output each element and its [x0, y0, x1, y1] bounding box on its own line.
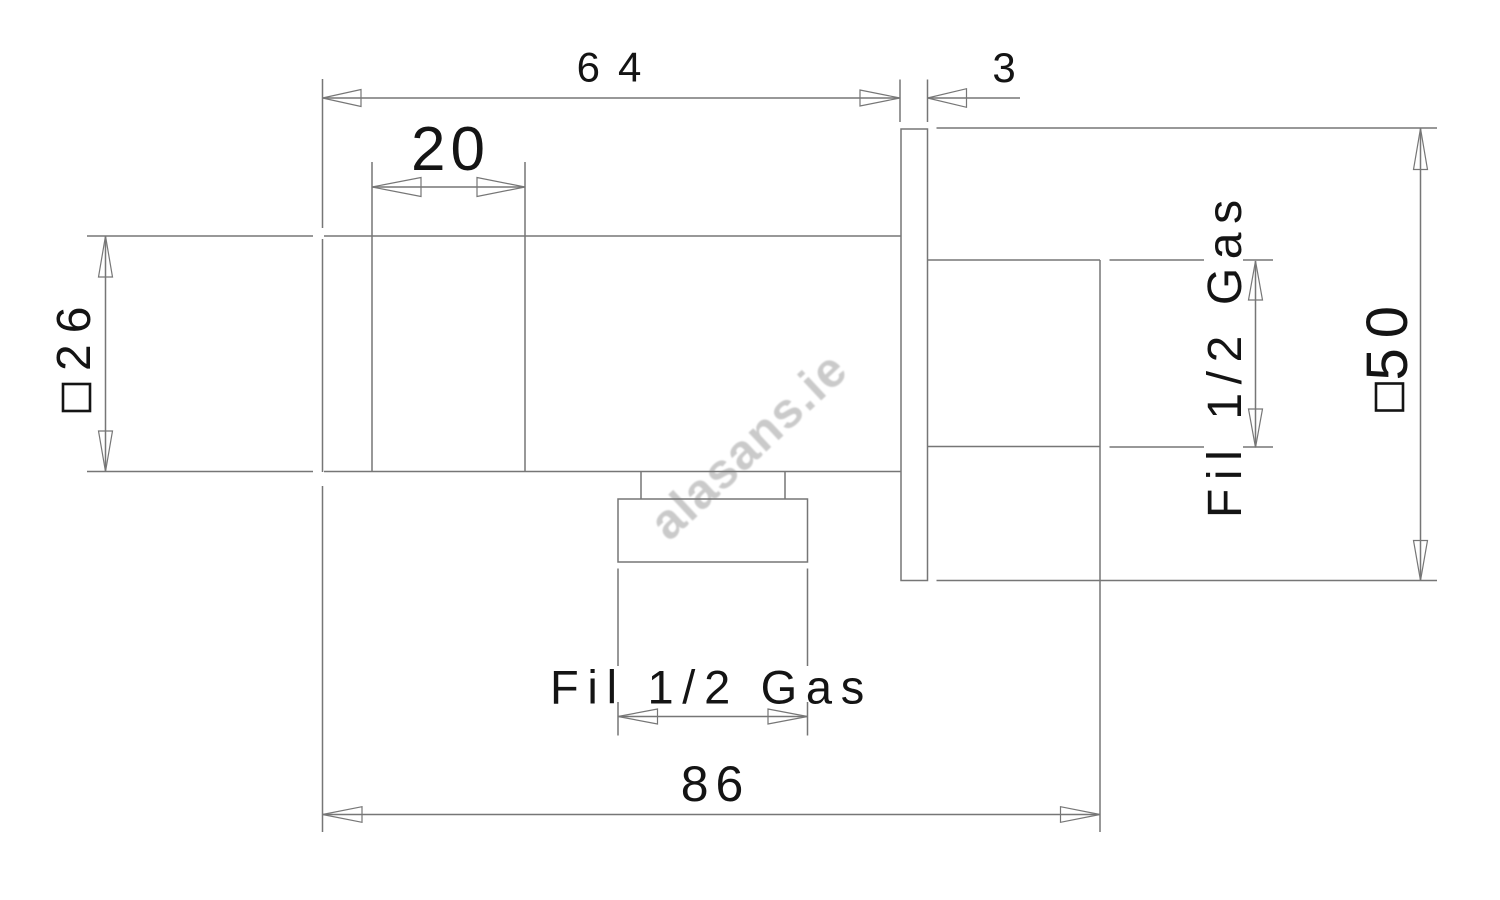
svg-text:26: 26 [48, 296, 101, 371]
svg-text:50: 50 [1355, 296, 1420, 381]
svg-text:86: 86 [681, 756, 751, 812]
svg-text:20: 20 [411, 115, 490, 184]
svg-text:64: 64 [577, 44, 660, 91]
svg-text:Fil 1/2 Gas: Fil 1/2 Gas [1199, 191, 1252, 518]
svg-text:Fil 1/2 Gas: Fil 1/2 Gas [550, 661, 873, 714]
svg-text:3: 3 [992, 44, 1015, 91]
